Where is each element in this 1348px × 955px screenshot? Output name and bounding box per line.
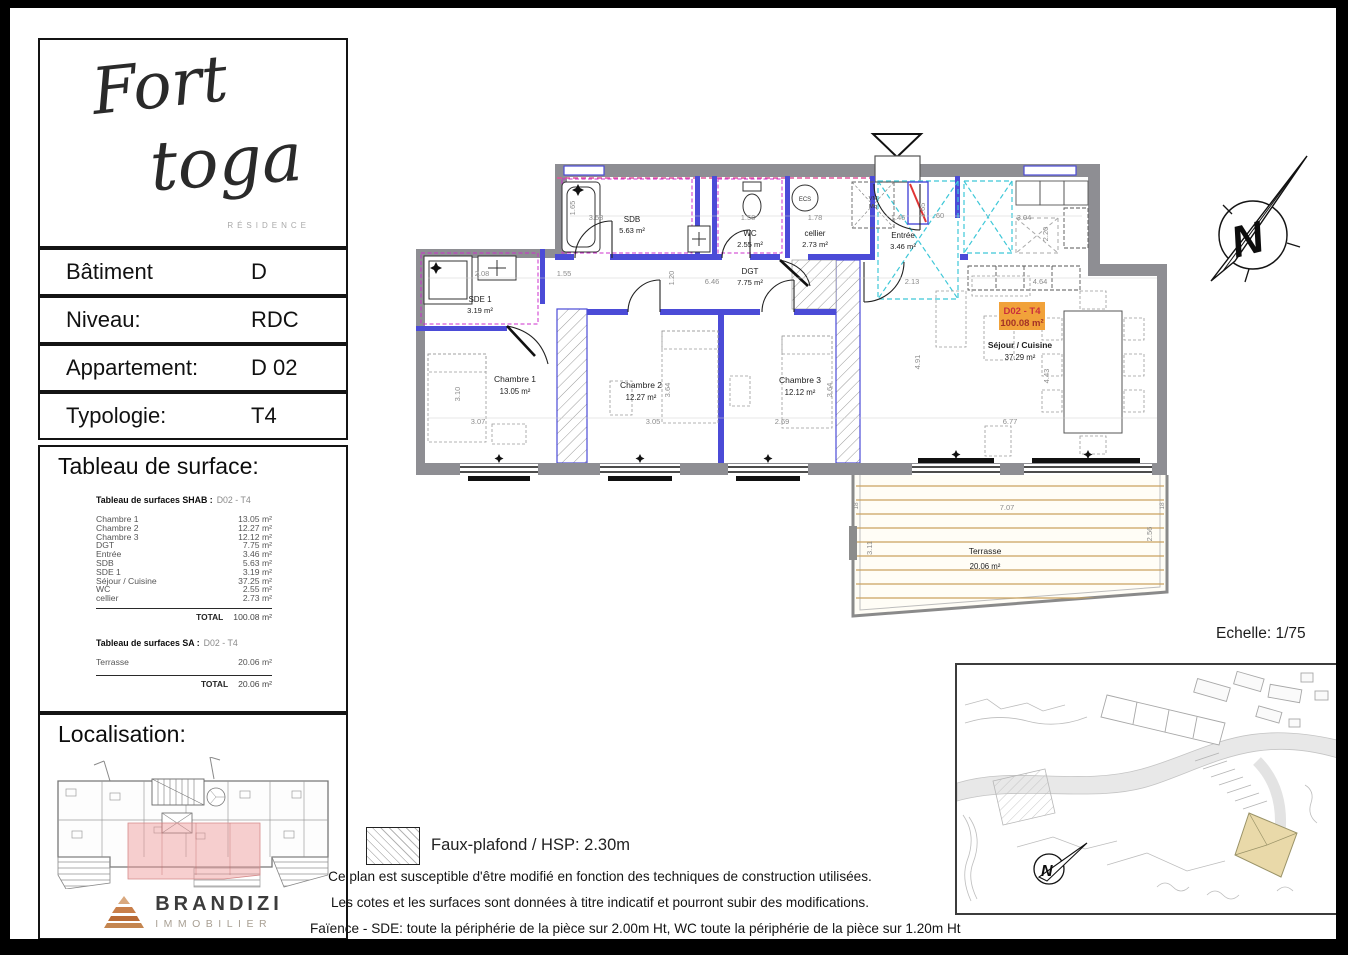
surface-table-box: Tableau de surface: Tableau de surfaces …	[38, 445, 348, 713]
total-rule	[96, 608, 272, 609]
localisation-box: Localisation:	[38, 713, 348, 940]
logo-word-2: toga	[148, 127, 304, 199]
faux-plafond-hatch	[557, 260, 860, 463]
dim-label: 6.46	[705, 277, 720, 286]
info-value: RDC	[251, 307, 346, 333]
brand-logo: BRANDIZI IMMOBILIER	[40, 893, 346, 930]
logo-word-1: Fort	[89, 51, 230, 122]
localisation-mini-plan	[44, 757, 342, 889]
dim-label: 6.77	[1003, 417, 1018, 426]
svg-text:100.08 m²: 100.08 m²	[1000, 318, 1043, 329]
dim-label: 1.20	[667, 271, 676, 286]
dim-label: 3.58	[589, 213, 604, 222]
dim-label: 2.69	[775, 417, 790, 426]
svg-text:Chambre 2: Chambre 2	[620, 380, 662, 390]
dim-label: 2.56	[1145, 527, 1154, 542]
closet	[1016, 218, 1058, 253]
site-map: N	[955, 663, 1343, 915]
info-row-batiment: Bâtiment D	[38, 248, 348, 296]
info-value: D 02	[251, 355, 346, 381]
entrance-marker-icon	[873, 134, 921, 157]
site-map-drawing: N	[957, 665, 1341, 913]
svg-text:DGT: DGT	[742, 267, 759, 276]
surface-table: Tableau de surfaces SHAB :D02 - T4 Chamb…	[96, 495, 272, 689]
logo-box: Fort toga RÉSIDENCE	[38, 38, 348, 248]
dim-label: 2.20	[1041, 227, 1050, 242]
dining-table	[1064, 311, 1122, 433]
terrace	[849, 475, 1167, 616]
svg-text:12.27 m²: 12.27 m²	[626, 393, 657, 402]
svg-text:cellier: cellier	[805, 229, 826, 238]
svg-text:3.46 m²: 3.46 m²	[890, 242, 916, 251]
svg-text:Chambre 3: Chambre 3	[779, 375, 821, 385]
table-row: Terrasse20.06 m²	[96, 658, 272, 667]
dim-label: 1.46	[891, 213, 906, 222]
room-sdb: SDB5.63 m²	[619, 215, 645, 235]
brand-tagline: IMMOBILIER	[155, 918, 283, 930]
highlighted-building	[1235, 813, 1297, 877]
shab-code: D02 - T4	[217, 495, 251, 505]
info-row-typologie: Typologie: T4	[38, 392, 348, 440]
dim-label: 4.43	[1042, 369, 1051, 384]
dim-label: .60	[934, 211, 944, 220]
dim-label: 3.11	[865, 541, 874, 555]
highlighted-apartment	[128, 823, 260, 879]
shab-header: Tableau de surfaces SHAB :	[96, 495, 213, 505]
dim-label: 1.65	[918, 203, 927, 218]
plan-sheet: Fort toga RÉSIDENCE Bâtiment D Niveau: R…	[0, 0, 1348, 955]
svg-text:Chambre 1: Chambre 1	[494, 374, 536, 384]
door-leaves	[507, 260, 808, 356]
localisation-title: Localisation:	[58, 721, 186, 748]
info-label: Appartement:	[66, 355, 251, 381]
svg-text:20.06 m²: 20.06 m²	[970, 562, 1001, 571]
svg-text:Entrée: Entrée	[891, 231, 915, 240]
dim-label: 4.91	[913, 355, 922, 370]
sa-total-row: TOTAL20.06 m²	[96, 679, 272, 689]
svg-text:12.12 m²: 12.12 m²	[785, 388, 816, 397]
sa-header: Tableau de surfaces SA :	[96, 638, 200, 648]
info-row-appartement: Appartement: D 02	[38, 344, 348, 392]
svg-text:2.73 m²: 2.73 m²	[802, 240, 828, 249]
disclaimer: Ce plan est susceptible d'être modifié e…	[310, 864, 890, 943]
dim-label: 3.64	[825, 383, 834, 398]
svg-text:5.63 m²: 5.63 m²	[619, 226, 645, 235]
svg-text:D02 - T4: D02 - T4	[1004, 306, 1042, 317]
svg-text:N: N	[1041, 863, 1053, 880]
svg-text:3.19 m²: 3.19 m²	[467, 306, 493, 315]
disclaimer-line: Les cotes et les surfaces sont données à…	[310, 890, 890, 916]
floor-plan: SDB5.63 m² WC2.55 m² cellier2.73 m² Entr…	[412, 126, 1172, 626]
info-value: D	[251, 259, 346, 285]
faux-plafond-swatch	[366, 827, 420, 865]
room-ch3: Chambre 312.12 m²	[779, 375, 821, 397]
dim-label: 3.05	[646, 417, 661, 426]
scale-label: Echelle: 1/75	[1216, 625, 1306, 643]
dim-label: 1.55	[557, 269, 572, 278]
svg-text:ECS: ECS	[799, 197, 811, 203]
dim-label: 2.13	[905, 277, 920, 286]
svg-text:VM: VM	[869, 196, 878, 202]
unit-tag: D02 - T4 100.08 m²	[999, 302, 1045, 330]
room-entree: Entrée3.46 m²	[890, 231, 916, 251]
sa-code: D02 - T4	[204, 638, 238, 648]
dim-label: 3.64	[663, 383, 672, 398]
info-value: T4	[251, 403, 346, 429]
site-north-icon: N	[1034, 843, 1087, 884]
info-label: Typologie:	[66, 403, 251, 429]
kitchen-counters	[968, 181, 1088, 290]
info-label: Bâtiment	[66, 259, 251, 285]
legend-label: Faux-plafond / HSP: 2.30m	[431, 836, 630, 855]
svg-text:SDE 1: SDE 1	[468, 295, 492, 304]
dim-label: 1.78	[808, 213, 823, 222]
brand-name: BRANDIZI	[155, 893, 283, 916]
table-row: cellier2.73 m²	[96, 594, 272, 603]
room-sejour: Séjour / Cuisine37.29 m²	[988, 340, 1053, 362]
surface-table-title: Tableau de surface:	[58, 453, 259, 480]
dim-label: 3.07	[471, 417, 486, 426]
entrance-recess	[875, 156, 920, 182]
total-rule	[96, 675, 272, 676]
svg-text:13.05 m²: 13.05 m²	[500, 387, 531, 396]
svg-text:Terrasse: Terrasse	[969, 546, 1002, 556]
svg-text:37.29 m²: 37.29 m²	[1005, 353, 1036, 362]
svg-text:WC: WC	[743, 229, 757, 238]
dim-label: 3.04	[1017, 213, 1032, 222]
disclaimer-line: Faïence - SDE: toute la périphérie de la…	[310, 916, 890, 942]
room-ch1: Chambre 113.05 m²	[494, 374, 536, 396]
room-dgt: DGT7.75 m²	[737, 267, 763, 287]
info-label: Niveau:	[66, 307, 251, 333]
brand-pyramid-icon	[103, 895, 145, 929]
dim-label: 3.10	[453, 387, 462, 402]
north-arrow-icon: N	[1205, 151, 1320, 286]
svg-text:SDB: SDB	[624, 215, 640, 224]
info-row-niveau: Niveau: RDC	[38, 296, 348, 344]
dim-label: 18	[1159, 502, 1166, 510]
dim-label: 2.08	[475, 269, 490, 278]
svg-text:2.55 m²: 2.55 m²	[737, 240, 763, 249]
dim-label: 4.64	[1033, 277, 1048, 286]
dim-label: 1.58	[741, 213, 756, 222]
svg-text:Mq: Mq	[869, 204, 877, 210]
dim-label: 18	[853, 502, 860, 510]
svg-text:Séjour / Cuisine: Séjour / Cuisine	[988, 340, 1053, 350]
disclaimer-line: Ce plan est susceptible d'être modifié e…	[310, 864, 890, 890]
room-ch2: Chambre 212.27 m²	[620, 380, 662, 402]
room-cellier: cellier2.73 m²	[802, 229, 828, 249]
dim-label: 7.07	[1000, 503, 1015, 512]
shab-total-row: TOTAL100.08 m²	[96, 612, 272, 622]
svg-text:7.75 m²: 7.75 m²	[737, 278, 763, 287]
dim-label: 1.65	[568, 201, 577, 216]
logo-subtitle: RÉSIDENCE	[227, 221, 310, 230]
room-sde1: SDE 13.19 m²	[467, 295, 493, 315]
entry-zone	[878, 181, 1012, 299]
